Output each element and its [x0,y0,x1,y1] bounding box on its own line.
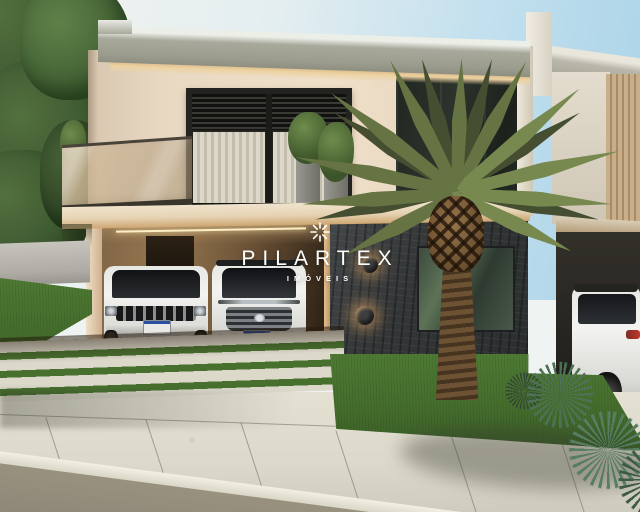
suv-left-headlight [194,306,206,316]
suv-left-grille [116,306,196,321]
suv-left-headlight [105,306,117,316]
star-asterisk-icon [310,222,330,242]
tree-shadow-on-paving [0,390,290,428]
wall-sconce-light [355,306,374,325]
suv-right-brand-logo [254,314,265,322]
watermark-brand-text: PILARTEX [0,248,640,269]
neighbor-wood-slat-panel [606,74,640,224]
window-mullion [266,94,272,206]
neighbor-car-rear-window [578,294,636,324]
scene-container: PILARTEX IMÓVEIS [0,0,640,512]
watermark: PILARTEX IMÓVEIS [0,222,640,283]
roof-parapet-step [98,20,132,34]
neighbor-car-taillight [626,330,640,339]
curtain-panel-left [193,132,265,204]
suv-right-drl-strip [218,300,300,304]
watermark-tagline-text: IMÓVEIS [0,275,640,283]
neighbor-car-roof-rail [574,284,638,292]
